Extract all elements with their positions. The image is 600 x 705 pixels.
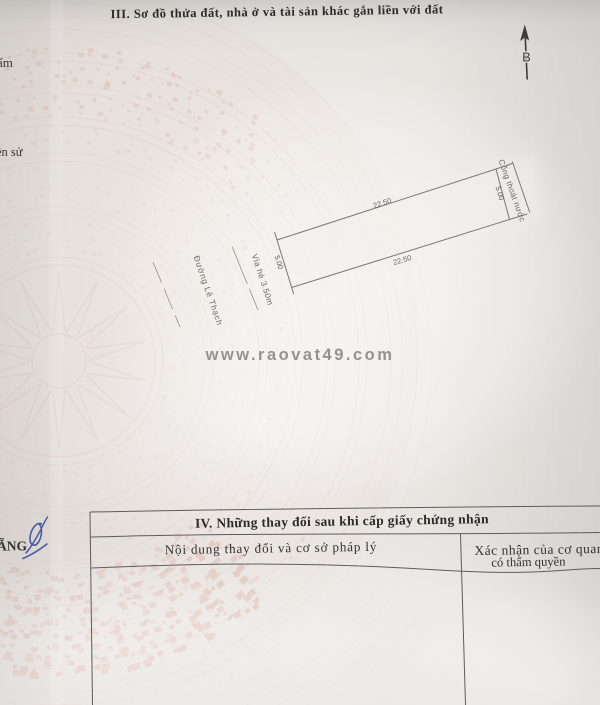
svg-text:ẴNG: ẴNG: [0, 539, 27, 554]
svg-text:ẩm: ẩm: [0, 55, 13, 70]
svg-text:có thẩm quyền: có thẩm quyền: [491, 554, 566, 569]
svg-text:B: B: [522, 50, 531, 65]
svg-text:www.raovat49.com: www.raovat49.com: [205, 346, 395, 364]
svg-text:ền sử: ền sử: [0, 145, 24, 159]
